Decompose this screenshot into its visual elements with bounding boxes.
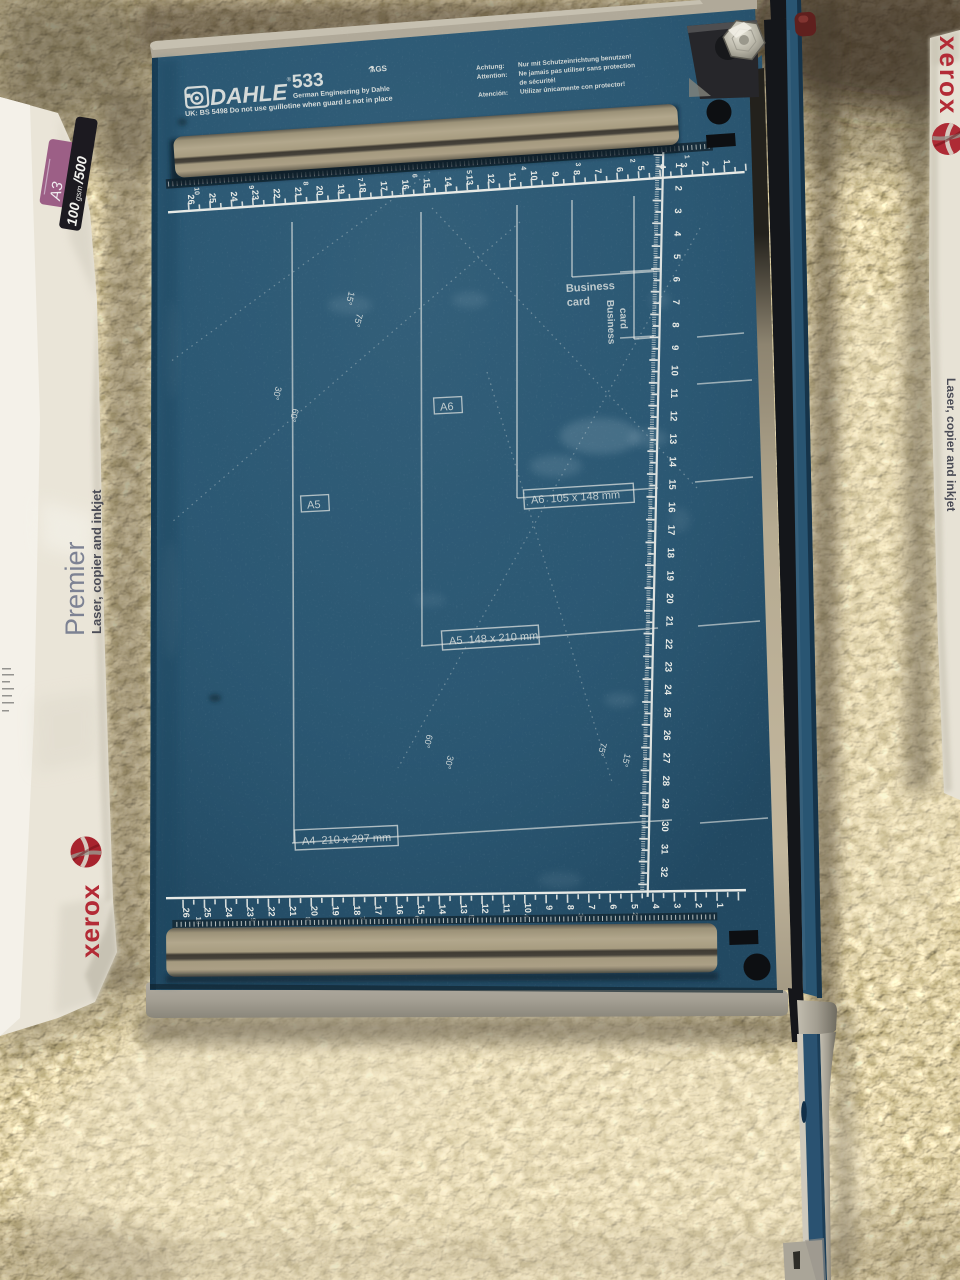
svg-text:18: 18 — [665, 547, 676, 558]
svg-text:1: 1 — [722, 159, 732, 165]
svg-text:8: 8 — [301, 181, 308, 185]
svg-text:25: 25 — [661, 707, 672, 719]
svg-text:9: 9 — [544, 905, 554, 910]
svg-text:29: 29 — [659, 798, 670, 809]
svg-text:8: 8 — [572, 170, 582, 176]
svg-text:21: 21 — [288, 906, 298, 916]
svg-text:12: 12 — [480, 903, 490, 913]
svg-text:18: 18 — [357, 182, 368, 193]
svg-text:Laser, copier and inkjet: Laser, copier and inkjet — [944, 378, 958, 511]
svg-text:22: 22 — [272, 188, 283, 199]
svg-text:9: 9 — [669, 345, 680, 351]
svg-text:12: 12 — [668, 411, 679, 422]
svg-text:23: 23 — [245, 907, 255, 917]
svg-text:3: 3 — [672, 903, 682, 908]
svg-text:20: 20 — [664, 593, 675, 604]
svg-text:15: 15 — [416, 904, 426, 914]
svg-text:21: 21 — [293, 187, 304, 198]
svg-text:28: 28 — [660, 775, 671, 786]
svg-text:10: 10 — [529, 170, 540, 181]
svg-text:19: 19 — [664, 570, 675, 581]
svg-text:12: 12 — [486, 173, 497, 184]
svg-text:6: 6 — [608, 904, 618, 909]
svg-text:19: 19 — [331, 906, 341, 916]
svg-text:3: 3 — [574, 162, 581, 166]
svg-text:14: 14 — [437, 904, 447, 914]
svg-text:5: 5 — [671, 254, 682, 260]
svg-text:A6: A6 — [440, 401, 454, 414]
svg-text:18: 18 — [352, 905, 362, 915]
svg-text:23: 23 — [662, 661, 673, 672]
svg-text:5: 5 — [630, 904, 640, 909]
svg-text:card: card — [566, 296, 590, 309]
svg-text:4: 4 — [519, 166, 526, 170]
svg-text:13: 13 — [667, 433, 678, 444]
svg-text:2: 2 — [700, 161, 710, 167]
svg-text:14: 14 — [443, 176, 454, 187]
svg-text:1: 1 — [673, 163, 684, 169]
svg-text:2: 2 — [628, 158, 635, 162]
svg-text:5: 5 — [636, 165, 646, 171]
svg-text:24: 24 — [662, 684, 673, 696]
svg-text:11: 11 — [507, 172, 518, 182]
svg-text:Premier: Premier — [60, 541, 90, 636]
svg-text:31: 31 — [658, 844, 669, 856]
svg-text:card: card — [617, 308, 629, 329]
svg-text:2: 2 — [694, 903, 704, 908]
svg-text:17: 17 — [379, 181, 390, 192]
svg-text:7: 7 — [587, 905, 597, 910]
svg-text:xerox: xerox — [934, 36, 960, 115]
svg-text:A5: A5 — [307, 499, 321, 512]
svg-text:⚗GS: ⚗GS — [368, 64, 388, 74]
svg-text:8: 8 — [669, 322, 680, 328]
svg-text:21: 21 — [663, 616, 674, 628]
svg-text:4: 4 — [671, 231, 682, 237]
svg-text:5: 5 — [465, 170, 472, 174]
svg-text:11: 11 — [668, 388, 679, 399]
svg-text:13: 13 — [464, 175, 475, 186]
svg-text:2: 2 — [672, 185, 683, 191]
svg-text:Business: Business — [604, 300, 617, 345]
svg-text:26: 26 — [181, 908, 191, 918]
svg-text:8: 8 — [566, 905, 576, 910]
svg-text:30: 30 — [659, 821, 670, 832]
svg-text:17: 17 — [373, 905, 383, 915]
svg-text:6: 6 — [615, 167, 625, 173]
svg-text:7: 7 — [593, 168, 603, 174]
svg-text:14: 14 — [667, 456, 678, 468]
svg-text:11: 11 — [501, 903, 511, 913]
svg-text:16: 16 — [666, 502, 677, 513]
svg-text:20: 20 — [309, 906, 319, 916]
svg-text:26: 26 — [661, 730, 672, 741]
svg-text:xerox: xerox — [75, 884, 105, 958]
svg-text:19: 19 — [336, 184, 347, 195]
svg-text:3: 3 — [672, 208, 683, 214]
svg-text:24: 24 — [224, 907, 234, 917]
svg-text:10: 10 — [668, 365, 679, 376]
svg-text:26: 26 — [186, 194, 197, 205]
svg-text:25: 25 — [207, 193, 218, 204]
svg-text:9: 9 — [550, 171, 560, 177]
svg-text:15: 15 — [422, 178, 433, 189]
svg-text:22: 22 — [267, 906, 277, 916]
svg-text:16: 16 — [400, 179, 411, 190]
svg-text:25: 25 — [203, 907, 213, 917]
svg-text:7: 7 — [670, 299, 681, 305]
svg-text:15: 15 — [666, 479, 677, 491]
svg-text:Laser, copier and inkjet: Laser, copier and inkjet — [89, 489, 104, 634]
svg-text:23: 23 — [250, 190, 261, 201]
svg-text:10: 10 — [192, 187, 200, 195]
svg-text:16: 16 — [395, 905, 405, 915]
svg-text:10: 10 — [523, 903, 533, 913]
svg-text:7: 7 — [356, 178, 363, 182]
svg-text:27: 27 — [660, 753, 671, 764]
svg-text:17: 17 — [665, 525, 676, 536]
svg-text:4: 4 — [651, 904, 661, 909]
svg-text:20: 20 — [314, 185, 325, 196]
svg-text:1: 1 — [683, 155, 690, 159]
svg-text:533: 533 — [291, 70, 324, 93]
svg-text:1: 1 — [715, 903, 725, 908]
svg-text:6: 6 — [410, 174, 417, 178]
svg-text:32: 32 — [658, 867, 669, 878]
svg-text:9: 9 — [247, 185, 254, 189]
svg-text:24: 24 — [229, 191, 240, 202]
svg-text:13: 13 — [459, 904, 469, 914]
svg-text:22: 22 — [663, 639, 674, 650]
svg-text:6: 6 — [670, 277, 681, 283]
